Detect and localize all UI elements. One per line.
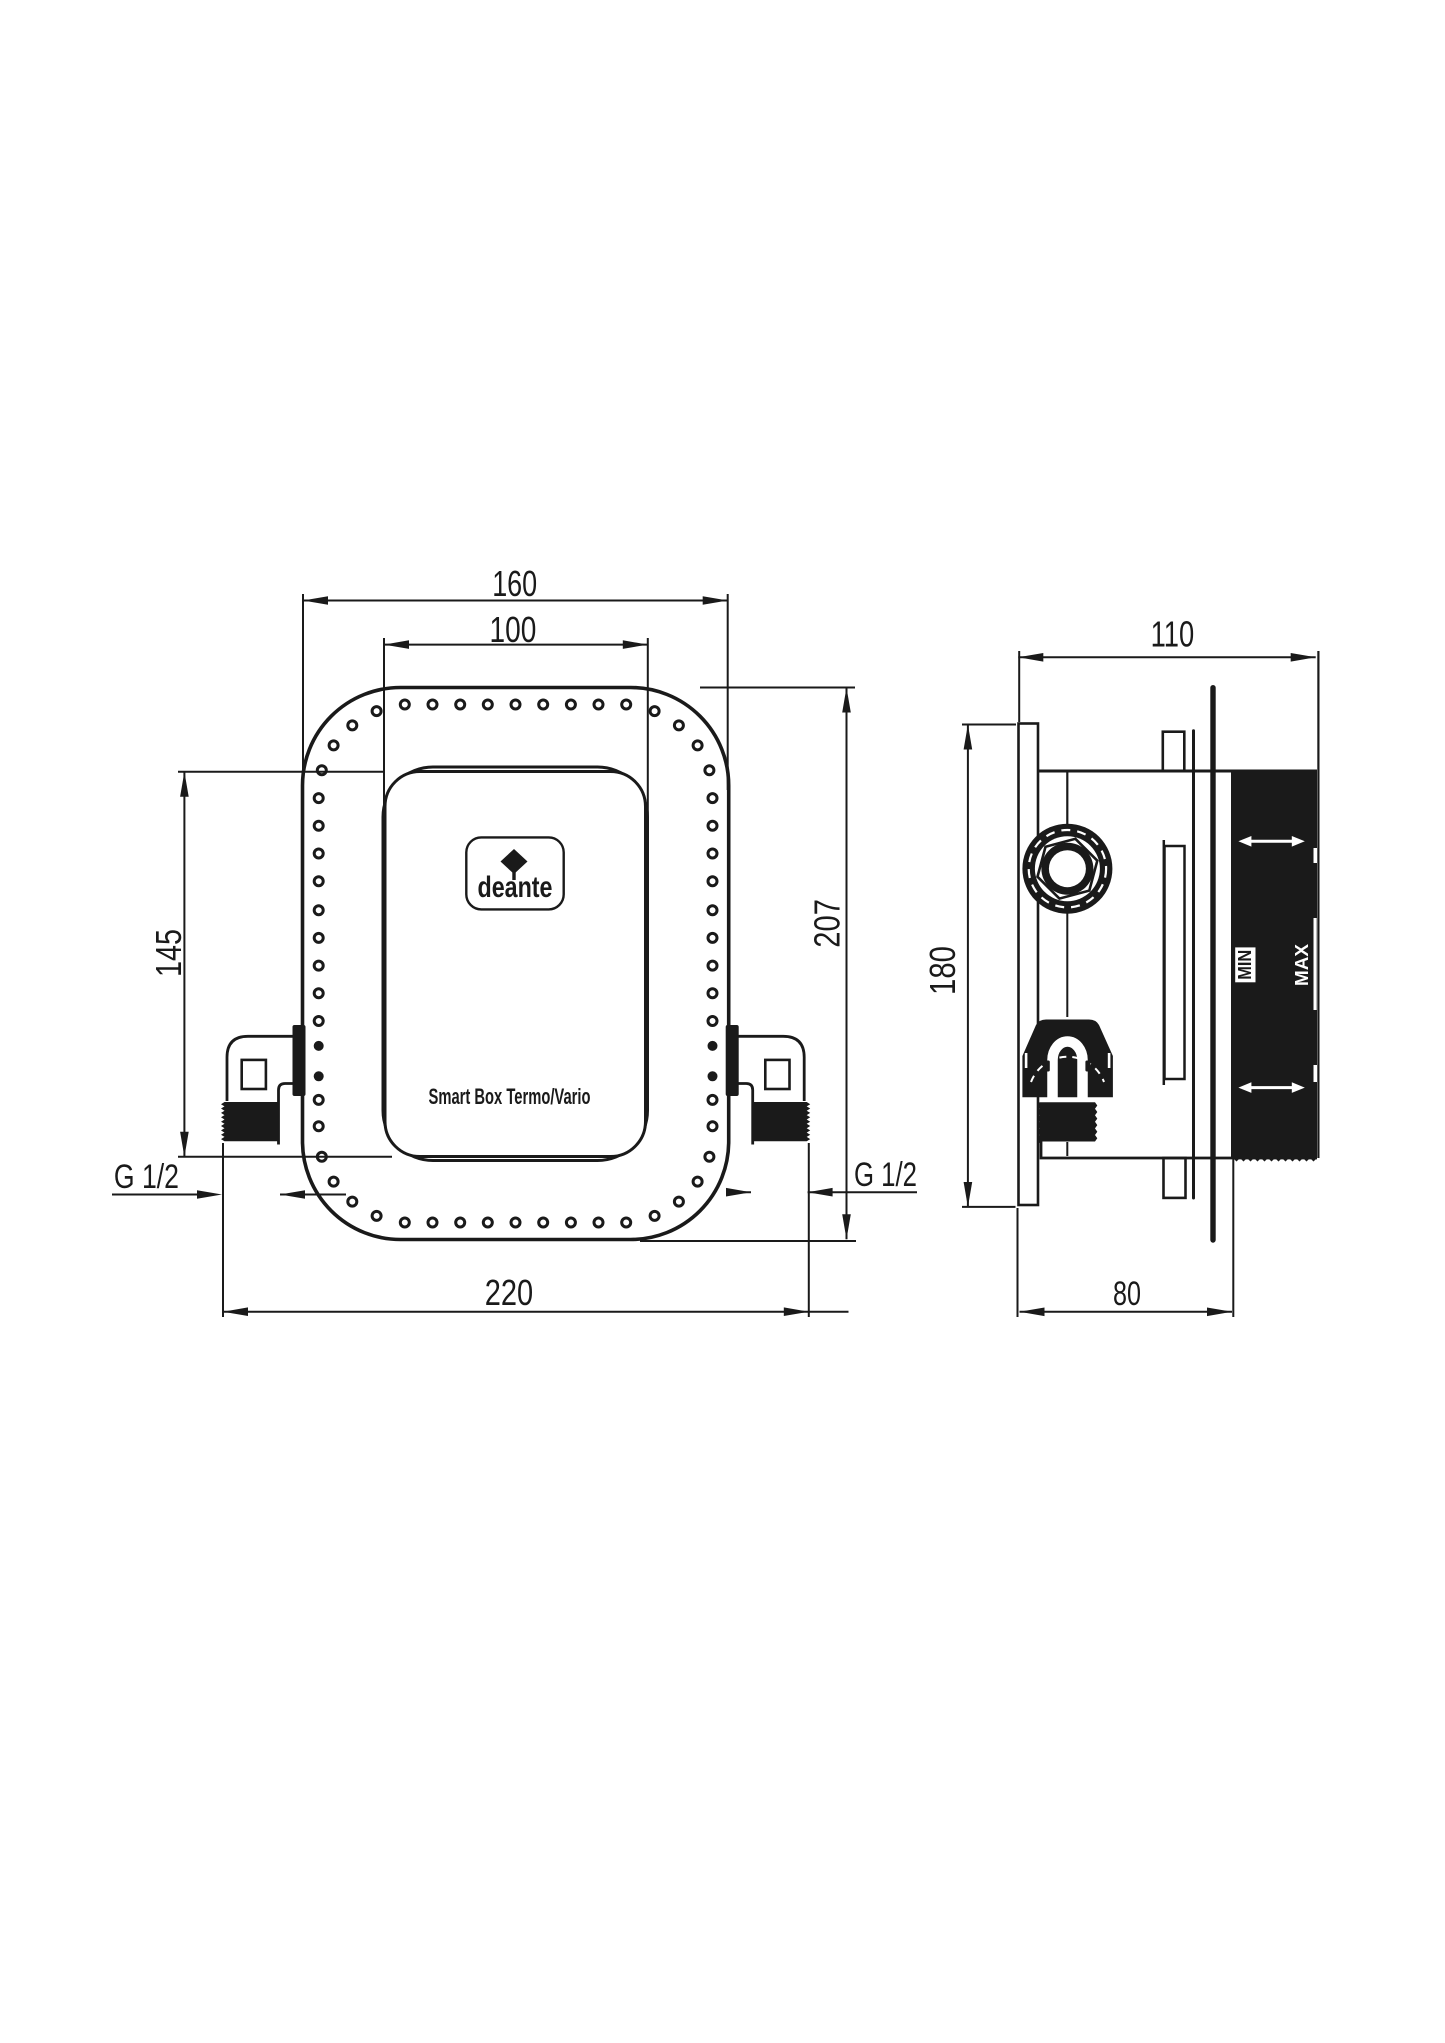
svg-text:G 1/2: G 1/2 (854, 1156, 917, 1194)
svg-text:207: 207 (807, 899, 848, 948)
svg-text:160: 160 (492, 563, 537, 604)
svg-text:220: 220 (485, 1272, 533, 1313)
svg-text:180: 180 (922, 946, 963, 995)
svg-text:80: 80 (1113, 1275, 1141, 1313)
svg-text:100: 100 (490, 609, 537, 650)
svg-text:G 1/2: G 1/2 (114, 1158, 179, 1196)
svg-text:deante: deante (478, 871, 553, 904)
svg-text:MAX: MAX (1292, 944, 1312, 986)
svg-text:110: 110 (1151, 614, 1195, 655)
svg-text:Smart Box Termo/Vario: Smart Box Termo/Vario (429, 1084, 591, 1109)
svg-text:MIN: MIN (1235, 950, 1255, 980)
svg-text:145: 145 (148, 929, 189, 977)
